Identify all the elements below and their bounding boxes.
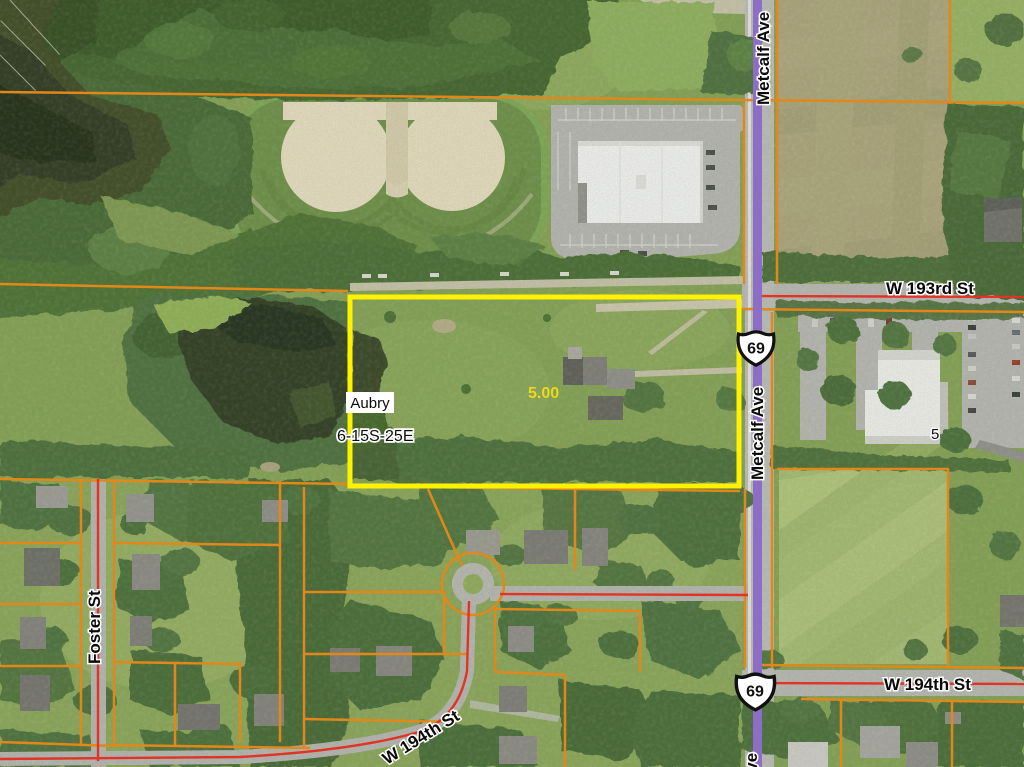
svg-text:69: 69 [747, 341, 765, 358]
svg-text:69: 69 [746, 684, 764, 701]
svg-text:W 193rd St: W 193rd St [886, 279, 974, 298]
svg-text:Metcalf Ave: Metcalf Ave [748, 387, 767, 480]
svg-text:W 194th St: W 194th St [884, 675, 971, 694]
svg-text:5.00: 5.00 [528, 385, 559, 402]
svg-text:6-15S-25E: 6-15S-25E [337, 428, 414, 445]
svg-text:5: 5 [931, 426, 939, 443]
svg-text:Metcalf Ave: Metcalf Ave [742, 753, 761, 767]
svg-text:Foster St: Foster St [85, 590, 104, 664]
svg-text:Metcalf Ave: Metcalf Ave [754, 12, 773, 105]
svg-text:Aubry: Aubry [350, 395, 390, 412]
